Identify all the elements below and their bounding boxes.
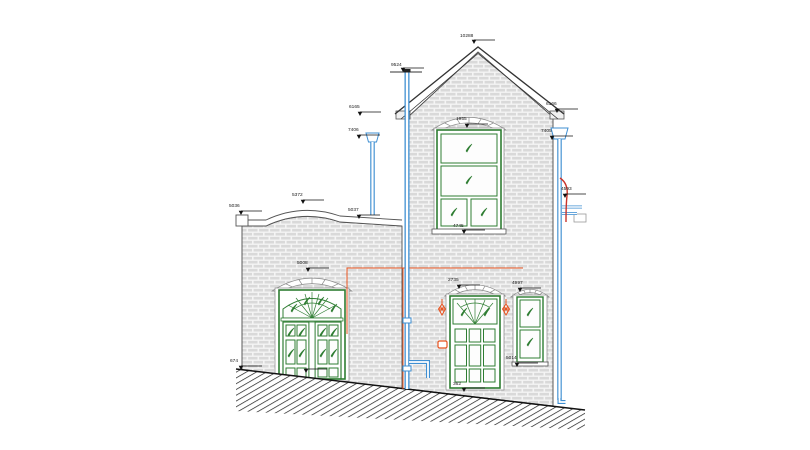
outlet-box <box>438 341 447 348</box>
left-downpipe <box>366 133 379 215</box>
meter-box <box>574 214 586 222</box>
entrance-door <box>439 285 510 390</box>
right-downpipe <box>551 128 568 402</box>
left-double-door <box>272 278 352 381</box>
elevation-svg: 10288 9524 6165 7406 6166 7405 5036 5372… <box>0 0 810 450</box>
dimension-label-right-eave: 6166 <box>546 101 557 107</box>
dimension-label-ground-left: 674 <box>230 358 238 364</box>
dimension-label-left-rainwater-head: 7406 <box>348 127 359 133</box>
door-panels <box>455 329 495 382</box>
side-window <box>511 289 549 366</box>
dimension-label-entrance-door-head: 2735 <box>448 277 459 283</box>
dimension-label-vent-pipe: 9524 <box>391 62 402 68</box>
pipe-collar <box>403 366 411 371</box>
dimension-arrow <box>472 40 495 44</box>
dimension-label-flue: 4593 <box>561 186 572 192</box>
rainwater-head <box>551 128 568 139</box>
dimension-label-gable-window-head: 1955 <box>456 116 467 122</box>
parapet-pier <box>236 215 248 226</box>
elevation-drawing-canvas: 10288 9524 6165 7406 6166 7405 5036 5372… <box>0 0 810 450</box>
dimension-label-parapet-apex: 5372 <box>292 192 303 198</box>
dimension-label-right-rainwater-head: 7405 <box>541 128 552 134</box>
dimension-label-side-window-sill: 5014 <box>506 355 517 361</box>
gable-window <box>432 117 506 234</box>
pipe-cap <box>404 69 411 73</box>
dimension-label-side-window-head: 4997 <box>512 280 523 286</box>
pipe-collar <box>403 318 411 323</box>
dimension-label-entrance-threshold: 362 <box>453 381 461 387</box>
dimension-label-ridge: 10288 <box>460 33 474 39</box>
dimension-arrow <box>239 211 262 215</box>
dimension-arrow <box>301 200 324 204</box>
dimension-label-parapet-left: 5036 <box>229 203 240 209</box>
dimension-arrow <box>358 112 381 116</box>
rainwater-head <box>366 133 379 142</box>
dimension-label-gable-window-sill: 4745 <box>453 223 464 229</box>
dimension-label-left-eave: 6165 <box>349 104 360 110</box>
dimension-label-parapet-right: 5037 <box>348 207 359 213</box>
dimension-label-left-door-head: 5008 <box>297 260 308 266</box>
